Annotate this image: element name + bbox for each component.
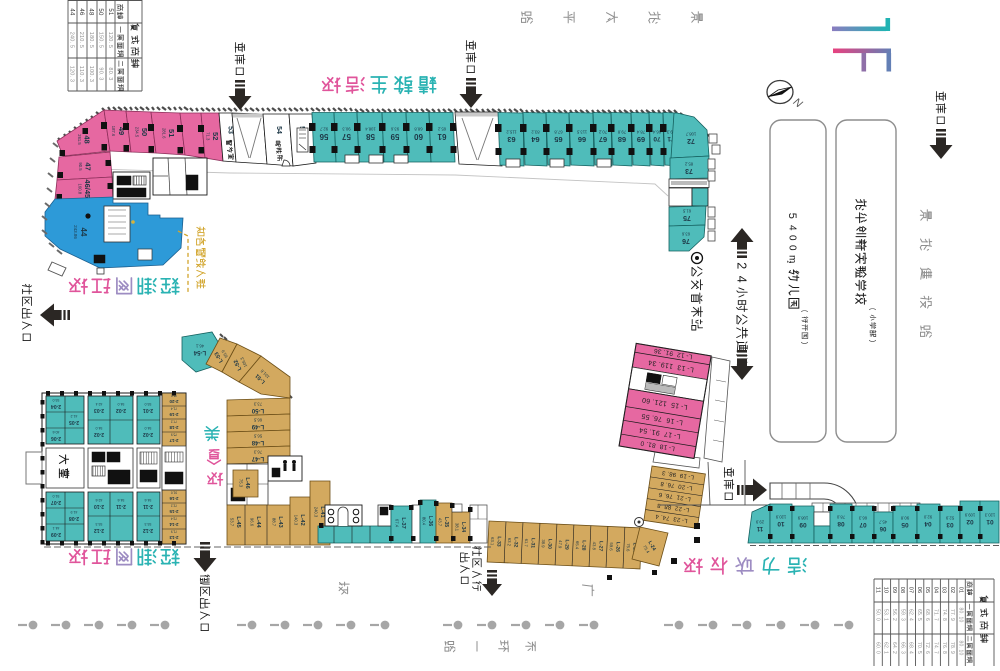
svg-text:70.2: 70.2 (598, 129, 607, 134)
svg-text:2-13: 2-13 (169, 535, 179, 540)
svg-text:10: 10 (777, 520, 785, 527)
svg-text:L-49: L-49 (251, 423, 264, 429)
svg-text:47: 47 (84, 162, 93, 170)
svg-text:L-30: L-30 (546, 538, 552, 549)
svg-text:0: 0 (874, 618, 880, 621)
svg-text:4: 4 (787, 225, 798, 231)
svg-text:42.4: 42.4 (96, 402, 103, 406)
svg-text:108.7: 108.7 (685, 131, 696, 136)
svg-text:54.0: 54.0 (96, 426, 103, 430)
svg-text:38.9: 38.9 (541, 539, 546, 548)
svg-text:2-05: 2-05 (69, 419, 79, 425)
svg-text:L-54: L-54 (193, 349, 206, 355)
svg-text:.: . (933, 615, 939, 616)
svg-text:5: 5 (78, 45, 84, 48)
svg-text:2-12: 2-12 (94, 527, 104, 533)
svg-text:85.2: 85.2 (684, 161, 693, 166)
svg-text:2-02: 2-02 (94, 431, 104, 437)
svg-text:L-36: L-36 (427, 516, 433, 527)
svg-text:2: 2 (891, 651, 897, 654)
svg-text:61.5: 61.5 (682, 208, 691, 213)
svg-text:.: . (924, 615, 930, 616)
svg-text:2-11: 2-11 (116, 503, 126, 509)
svg-text:4: 4 (735, 276, 749, 283)
svg-text:92.0: 92.0 (923, 514, 932, 519)
svg-text:0: 0 (874, 651, 880, 654)
svg-text:L-47: L-47 (251, 455, 264, 461)
svg-text:03: 03 (946, 521, 954, 528)
svg-text:73.4: 73.4 (171, 516, 177, 520)
svg-text:.: . (949, 615, 955, 616)
svg-text:78.0: 78.0 (836, 514, 845, 519)
svg-text:08: 08 (837, 520, 845, 527)
svg-text:90.3: 90.3 (342, 126, 351, 131)
svg-text:5: 5 (97, 45, 103, 48)
svg-text:3: 3 (941, 590, 947, 593)
svg-text:75: 75 (683, 214, 691, 221)
svg-text:160.8: 160.8 (78, 184, 83, 195)
svg-text:261.5: 261.5 (77, 134, 82, 145)
svg-text:1: 1 (957, 590, 963, 593)
svg-text:01: 01 (986, 518, 994, 525)
svg-text:3: 3 (97, 77, 103, 80)
svg-text:.: . (874, 615, 880, 616)
svg-text:71.4: 71.4 (171, 406, 177, 410)
svg-text:7: 7 (933, 618, 939, 621)
svg-text:5: 5 (786, 213, 798, 219)
svg-text:2: 2 (785, 261, 791, 264)
svg-text:88.7: 88.7 (271, 518, 276, 527)
svg-text:8: 8 (899, 590, 905, 593)
svg-text:66.3: 66.3 (858, 515, 867, 520)
svg-text:4: 4 (908, 618, 914, 621)
svg-text:2-16: 2-16 (169, 496, 179, 501)
svg-text:5: 5 (69, 45, 75, 48)
svg-text:9: 9 (891, 590, 897, 593)
svg-text:66: 66 (578, 135, 586, 144)
svg-text:50: 50 (140, 128, 149, 136)
svg-text:L-48: L-48 (251, 439, 264, 445)
svg-text:61: 61 (437, 132, 446, 141)
svg-text:71.9: 71.9 (171, 529, 177, 533)
svg-text:L-29: L-29 (563, 539, 569, 550)
svg-text:68.8: 68.8 (414, 126, 423, 131)
svg-text:2-04: 2-04 (51, 403, 61, 409)
svg-text:2-17: 2-17 (169, 438, 179, 443)
svg-text:6: 6 (916, 590, 922, 593)
svg-text:52.9: 52.9 (945, 515, 954, 520)
svg-text:02: 02 (966, 518, 974, 525)
svg-text:L-26: L-26 (614, 542, 620, 553)
svg-text:2-03: 2-03 (94, 407, 104, 413)
svg-text:7: 7 (933, 651, 939, 654)
svg-text:6: 6 (924, 651, 930, 654)
svg-text:L-32: L-32 (512, 537, 518, 548)
svg-text:70: 70 (653, 135, 661, 142)
svg-text:67.4: 67.4 (394, 519, 399, 528)
svg-text:90.8: 90.8 (900, 515, 909, 520)
svg-text:2-18: 2-18 (169, 425, 179, 430)
svg-text:L-35: L-35 (443, 517, 449, 528)
svg-text:41.2: 41.2 (71, 414, 78, 418)
svg-text:2-01: 2-01 (143, 407, 153, 413)
svg-text:75.6: 75.6 (626, 543, 631, 552)
svg-text:68: 68 (618, 135, 626, 144)
svg-text:243.86: 243.86 (73, 225, 78, 239)
svg-text:71.3: 71.3 (205, 132, 210, 141)
svg-text:2-12: 2-12 (143, 527, 153, 533)
svg-text:.: . (957, 647, 963, 648)
svg-text:.: . (941, 648, 947, 649)
svg-text:.: . (883, 648, 889, 649)
svg-text:5: 5 (916, 618, 922, 621)
svg-text:2-15: 2-15 (169, 509, 179, 514)
svg-text:9: 9 (949, 618, 955, 621)
svg-text:5: 5 (88, 45, 94, 48)
svg-text:2: 2 (735, 262, 749, 269)
svg-text:42.6: 42.6 (96, 498, 103, 502)
svg-text:40.6: 40.6 (53, 430, 60, 434)
svg-text:.: . (916, 648, 922, 649)
svg-text:46.1: 46.1 (195, 343, 204, 348)
svg-text:L-46: L-46 (244, 477, 250, 488)
svg-text:83.2: 83.2 (531, 129, 540, 134)
svg-text:.: . (949, 648, 955, 649)
svg-text:45.7: 45.7 (878, 519, 887, 524)
svg-text:3: 3 (107, 77, 113, 80)
svg-text:187.6: 187.6 (111, 126, 116, 137)
svg-text:108.9: 108.9 (797, 515, 808, 520)
svg-text:0: 0 (787, 245, 798, 251)
svg-text:72: 72 (687, 137, 695, 144)
svg-text:0: 0 (957, 620, 963, 623)
svg-text:5: 5 (107, 45, 113, 48)
svg-text:.: . (883, 615, 889, 616)
svg-text:2-02: 2-02 (116, 407, 126, 413)
svg-text:79.8: 79.8 (617, 129, 626, 134)
svg-text:63.2: 63.2 (507, 538, 512, 547)
svg-text:0: 0 (787, 235, 798, 241)
svg-text:51.0: 51.0 (53, 494, 60, 498)
svg-text:51: 51 (167, 129, 176, 137)
svg-text:2: 2 (891, 618, 897, 621)
svg-text:108.4: 108.4 (365, 126, 376, 131)
svg-text:46/45: 46/45 (83, 179, 92, 198)
svg-text:67.8: 67.8 (554, 129, 563, 134)
svg-text:93.6: 93.6 (390, 126, 399, 131)
svg-text:.: . (908, 648, 914, 649)
svg-text:53.3: 53.3 (145, 522, 152, 526)
svg-text:44.1: 44.1 (53, 526, 60, 530)
svg-text:.: . (924, 648, 930, 649)
svg-text:53.0: 53.0 (53, 398, 60, 402)
svg-text:120.3: 120.3 (984, 512, 995, 517)
svg-text:78.4: 78.4 (636, 129, 645, 134)
svg-text:2-08: 2-08 (69, 515, 79, 521)
svg-text:1: 1 (883, 651, 889, 654)
svg-text:66.5: 66.5 (253, 417, 262, 422)
svg-text:109.9: 109.9 (964, 512, 975, 517)
svg-text:65: 65 (554, 135, 562, 144)
svg-text:240.3: 240.3 (313, 507, 318, 518)
svg-text:3: 3 (88, 79, 94, 82)
svg-text:63.6: 63.6 (681, 231, 690, 236)
svg-text:44: 44 (79, 228, 88, 237)
svg-text:2-09: 2-09 (51, 531, 61, 537)
svg-text:8: 8 (941, 618, 947, 621)
svg-text:43.8: 43.8 (592, 542, 597, 551)
svg-text:63: 63 (507, 135, 515, 144)
svg-text:.: . (899, 648, 905, 649)
svg-text:07: 07 (859, 521, 867, 528)
svg-text:59: 59 (390, 132, 399, 141)
svg-text:11: 11 (756, 525, 763, 531)
svg-text:06: 06 (879, 525, 886, 531)
svg-text:66.4: 66.4 (652, 129, 661, 134)
svg-text:.: . (899, 615, 905, 616)
svg-text:76: 76 (682, 237, 690, 244)
svg-text:48: 48 (83, 135, 92, 143)
svg-text:L-42: L-42 (299, 514, 305, 525)
svg-text:L-34: L-34 (460, 522, 466, 533)
svg-text:47.9: 47.9 (558, 540, 563, 549)
svg-text:76.3: 76.3 (253, 449, 262, 454)
svg-text:2-11: 2-11 (143, 503, 153, 509)
svg-text:43.7: 43.7 (437, 518, 442, 527)
svg-text:1: 1 (883, 618, 889, 621)
svg-text:2-10: 2-10 (94, 503, 104, 509)
svg-text:115.2: 115.2 (506, 129, 517, 134)
svg-text:72.2: 72.2 (171, 503, 177, 507)
svg-text:120.9: 120.9 (775, 514, 786, 519)
svg-text:75.9: 75.9 (171, 432, 177, 436)
svg-text:7: 7 (908, 590, 914, 593)
svg-text:0: 0 (883, 590, 889, 593)
svg-text:61.7: 61.7 (524, 539, 529, 548)
svg-text:L-31: L-31 (529, 538, 535, 549)
svg-text:234.5: 234.5 (134, 127, 139, 138)
svg-text:.: . (874, 648, 880, 649)
svg-text:L-33: L-33 (495, 536, 501, 547)
svg-text:53.7: 53.7 (229, 518, 234, 527)
svg-text:281.6: 281.6 (161, 128, 166, 139)
svg-text:58: 58 (366, 132, 375, 141)
svg-text:65.2: 65.2 (437, 126, 446, 131)
svg-text:54.6: 54.6 (145, 498, 152, 502)
svg-text:80.4: 80.4 (421, 517, 426, 526)
svg-text:52: 52 (211, 132, 220, 140)
svg-text:77.2: 77.2 (171, 419, 177, 423)
svg-text:0: 0 (957, 653, 963, 656)
svg-text:.: . (941, 615, 947, 616)
svg-text:3: 3 (899, 651, 905, 654)
svg-text:54.6: 54.6 (118, 498, 125, 502)
svg-text:90.5: 90.5 (78, 162, 83, 171)
svg-text:92.7: 92.7 (319, 126, 328, 131)
svg-text:140.3: 140.3 (293, 515, 298, 526)
svg-text:8: 8 (941, 651, 947, 654)
svg-text:9: 9 (949, 651, 955, 654)
svg-text:2-19: 2-19 (169, 412, 179, 417)
svg-text:L-37: L-37 (400, 517, 406, 528)
svg-text:.: . (916, 615, 922, 616)
svg-text:56: 56 (319, 132, 328, 141)
svg-text:2-20: 2-20 (169, 399, 179, 404)
svg-text:67: 67 (599, 135, 607, 144)
svg-text:.: . (933, 648, 939, 649)
svg-text:65.4: 65.4 (575, 541, 580, 550)
svg-text:91.0: 91.0 (171, 490, 177, 494)
svg-text:09: 09 (799, 521, 807, 528)
svg-text:73: 73 (685, 167, 693, 174)
svg-text:113.5: 113.5 (576, 129, 587, 134)
svg-text:63.1: 63.1 (490, 537, 495, 546)
svg-text:73.3: 73.3 (253, 401, 262, 406)
svg-text:6: 6 (924, 618, 930, 621)
svg-text:2-07: 2-07 (51, 499, 61, 505)
svg-text:1: 1 (874, 590, 880, 593)
svg-text:2-02: 2-02 (143, 431, 153, 437)
svg-text:53.3: 53.3 (96, 522, 103, 526)
svg-text:3: 3 (69, 79, 75, 82)
svg-text:2-14: 2-14 (169, 522, 179, 527)
svg-text:.: . (957, 614, 963, 615)
svg-text:L-41: L-41 (319, 506, 325, 517)
svg-text:57: 57 (342, 132, 351, 141)
svg-text:): ) (869, 340, 876, 342)
svg-text:75.3: 75.3 (238, 479, 243, 488)
svg-text:05: 05 (901, 521, 909, 528)
svg-text:53: 53 (227, 126, 234, 134)
svg-text:2-06: 2-06 (51, 435, 61, 441)
svg-text:5: 5 (916, 651, 922, 654)
svg-text:56.5: 56.5 (253, 433, 262, 438)
svg-text:54.0: 54.0 (145, 426, 152, 430)
svg-text:54.0: 54.0 (118, 402, 125, 406)
svg-text:4: 4 (908, 651, 914, 654)
svg-text:L-27: L-27 (597, 541, 603, 552)
svg-text:04: 04 (924, 520, 932, 527)
svg-text:2: 2 (949, 590, 955, 593)
svg-text:.: . (908, 615, 914, 616)
svg-text:.: . (891, 648, 897, 649)
svg-text:L-50: L-50 (251, 407, 264, 413)
svg-text:60: 60 (414, 132, 423, 141)
svg-text:5: 5 (924, 590, 930, 593)
svg-text:.: . (891, 615, 897, 616)
svg-text:4: 4 (932, 590, 938, 593)
svg-text:3: 3 (899, 618, 905, 621)
svg-text:59.6: 59.6 (609, 542, 614, 551)
svg-text:29.9: 29.9 (755, 519, 764, 524)
svg-text:L-28: L-28 (580, 540, 586, 551)
svg-text:3: 3 (78, 79, 84, 82)
svg-text:54: 54 (275, 126, 282, 134)
svg-text:L-44: L-44 (255, 516, 261, 528)
svg-text:69: 69 (637, 135, 645, 144)
svg-text:): ) (801, 342, 808, 344)
svg-text:41.9: 41.9 (71, 510, 78, 514)
svg-text:38.1: 38.1 (454, 523, 459, 532)
svg-text:96.6: 96.6 (249, 518, 254, 527)
svg-text:L-43: L-43 (277, 516, 283, 527)
svg-text:64: 64 (531, 135, 540, 144)
svg-text:53.0: 53.0 (145, 402, 152, 406)
svg-text:L-45: L-45 (235, 516, 241, 527)
